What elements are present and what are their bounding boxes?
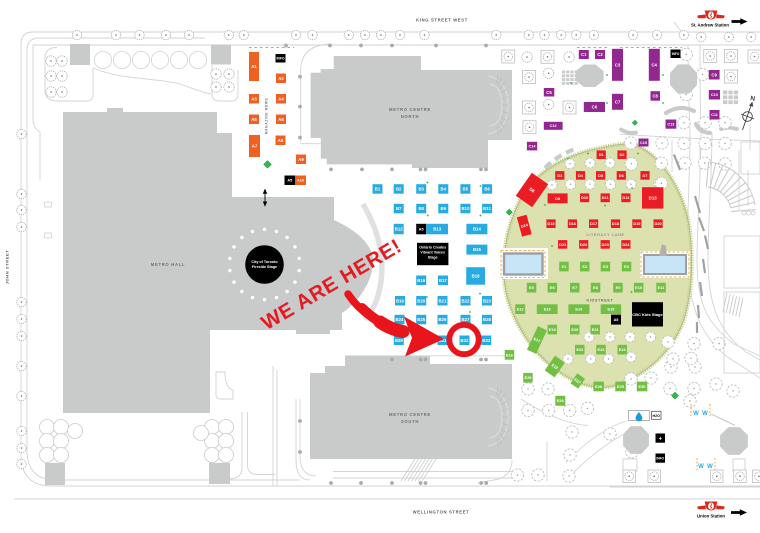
svg-text:B2: B2: [396, 187, 402, 192]
svg-text:CBC Kids Stage: CBC Kids Stage: [632, 312, 663, 317]
svg-text:D19: D19: [633, 221, 641, 226]
svg-text:C5: C5: [546, 90, 552, 95]
svg-text:B15: B15: [473, 247, 481, 252]
svg-text:INFO: INFO: [276, 57, 284, 61]
svg-text:MAGAZINE MEWS: MAGAZINE MEWS: [265, 98, 269, 135]
svg-text:E9: E9: [616, 285, 622, 290]
svg-text:A4: A4: [278, 96, 284, 101]
svg-text:KING STREET WEST: KING STREET WEST: [416, 18, 468, 23]
svg-text:E22: E22: [576, 347, 584, 352]
svg-text:B25: B25: [417, 317, 425, 322]
svg-text:Union Station: Union Station: [697, 513, 725, 518]
svg-text:INFO: INFO: [672, 52, 680, 56]
svg-text:E12: E12: [517, 307, 525, 312]
svg-text:E6: E6: [550, 285, 556, 290]
svg-text:C13: C13: [667, 123, 674, 127]
svg-text:C1: C1: [581, 52, 587, 57]
svg-text:E8: E8: [593, 285, 599, 290]
svg-text:C6: C6: [592, 105, 598, 110]
svg-text:D23: D23: [602, 242, 610, 247]
svg-text:B8: B8: [418, 206, 424, 211]
svg-text:E16: E16: [506, 352, 514, 357]
svg-text:D11: D11: [602, 195, 610, 200]
svg-text:A8: A8: [278, 138, 284, 143]
svg-text:C11: C11: [711, 113, 718, 117]
svg-text:E13: E13: [544, 307, 552, 312]
svg-text:W: W: [698, 464, 704, 470]
svg-text:B12: B12: [395, 227, 403, 232]
svg-text:E26: E26: [557, 398, 565, 403]
svg-text:E3: E3: [603, 264, 609, 269]
svg-text:D1: D1: [599, 152, 605, 157]
svg-text:E29: E29: [617, 384, 625, 389]
svg-text:B7: B7: [396, 206, 402, 211]
svg-text:C4: C4: [651, 62, 657, 67]
svg-text:C14: C14: [529, 145, 537, 149]
svg-text:C9: C9: [711, 72, 717, 77]
svg-text:D22: D22: [580, 242, 588, 247]
svg-text:A5: A5: [614, 318, 619, 322]
svg-text:E24: E24: [619, 347, 627, 352]
svg-text:LITERACY LANE: LITERACY LANE: [586, 233, 624, 237]
svg-text:+: +: [658, 436, 662, 442]
svg-text:E4: E4: [624, 264, 630, 269]
svg-text:B14: B14: [473, 227, 481, 232]
svg-text:C2: C2: [597, 52, 603, 57]
svg-text:E14: E14: [575, 307, 583, 312]
svg-text:A5: A5: [419, 227, 424, 231]
svg-text:B24: B24: [396, 317, 404, 322]
svg-text:C7: C7: [615, 99, 621, 104]
svg-text:C15: C15: [640, 141, 647, 145]
svg-text:E10: E10: [635, 285, 642, 290]
svg-text:Ontario Creates: Ontario Creates: [419, 246, 446, 250]
svg-text:W: W: [693, 411, 699, 417]
svg-text:KIDSTREET: KIDSTREET: [587, 299, 614, 303]
svg-text:W: W: [702, 411, 708, 417]
svg-text:A5: A5: [251, 117, 257, 122]
svg-text:B20: B20: [417, 298, 425, 303]
svg-text:E30: E30: [639, 384, 646, 389]
svg-text:B10: B10: [461, 206, 469, 211]
svg-text:B18: B18: [472, 274, 480, 279]
svg-text:B32: B32: [461, 338, 469, 343]
svg-text:A6: A6: [278, 117, 284, 122]
svg-text:D20: D20: [655, 221, 662, 226]
svg-text:B5: B5: [463, 187, 469, 192]
svg-text:E11: E11: [658, 285, 666, 290]
svg-text:B3: B3: [418, 187, 424, 192]
svg-text:A3: A3: [251, 96, 257, 101]
svg-text:D15: D15: [547, 221, 555, 226]
svg-text:B6: B6: [484, 187, 490, 192]
svg-text:E25: E25: [525, 375, 533, 380]
svg-text:Fireside Stage: Fireside Stage: [252, 265, 277, 269]
svg-text:B13: B13: [433, 227, 441, 232]
svg-text:B22: B22: [462, 298, 470, 303]
svg-text:METRO CENTRE: METRO CENTRE: [389, 107, 431, 112]
svg-text:E5: E5: [529, 285, 535, 290]
svg-text:E23: E23: [598, 347, 606, 352]
svg-text:D4: D4: [578, 173, 584, 178]
svg-text:D3: D3: [557, 173, 563, 178]
svg-text:E15: E15: [608, 307, 616, 312]
svg-text:E1: E1: [562, 264, 568, 269]
svg-text:B33: B33: [482, 338, 490, 343]
svg-text:METRO CENTRE: METRO CENTRE: [389, 412, 431, 417]
svg-text:B17: B17: [439, 278, 447, 283]
svg-text:A5: A5: [287, 179, 292, 183]
svg-text:B28: B28: [483, 317, 491, 322]
svg-text:D10: D10: [581, 195, 588, 200]
svg-text:A7: A7: [252, 144, 258, 149]
svg-text:D16: D16: [569, 221, 577, 226]
svg-text:C8: C8: [652, 94, 658, 99]
svg-text:Vibrant Voices: Vibrant Voices: [420, 251, 445, 255]
svg-text:E21: E21: [592, 327, 600, 332]
svg-text:Stage: Stage: [428, 256, 438, 260]
svg-text:WELLINGTON STREET: WELLINGTON STREET: [413, 510, 470, 515]
svg-text:E7: E7: [572, 285, 577, 290]
svg-text:D21: D21: [559, 242, 567, 247]
svg-text:B29: B29: [395, 338, 403, 343]
svg-text:E2: E2: [582, 264, 588, 269]
svg-text:B4: B4: [441, 187, 447, 192]
svg-text:NORTH: NORTH: [401, 114, 419, 119]
svg-text:City of Toronto: City of Toronto: [251, 260, 278, 264]
svg-text:C10: C10: [711, 93, 718, 97]
svg-text:B16: B16: [417, 278, 425, 283]
svg-text:D17: D17: [590, 221, 597, 226]
svg-text:D9: D9: [555, 196, 561, 201]
svg-text:B1: B1: [375, 187, 381, 192]
svg-text:D24: D24: [622, 242, 630, 247]
svg-text:D2: D2: [620, 152, 626, 157]
svg-text:D13: D13: [649, 196, 658, 201]
svg-text:D12: D12: [622, 195, 630, 200]
svg-text:E19: E19: [549, 327, 557, 332]
svg-text:St. Andrew Station: St. Andrew Station: [691, 22, 729, 27]
svg-text:D6: D6: [619, 173, 625, 178]
svg-text:B27: B27: [462, 317, 470, 322]
svg-text:E20: E20: [571, 327, 578, 332]
svg-text:B11: B11: [483, 206, 491, 211]
svg-text:B21: B21: [439, 298, 447, 303]
svg-text:D18: D18: [612, 221, 620, 226]
svg-text:D5: D5: [598, 173, 604, 178]
svg-text:JOHN STREET: JOHN STREET: [5, 250, 10, 285]
svg-text:A10: A10: [297, 179, 304, 183]
svg-text:B9: B9: [441, 206, 447, 211]
svg-text:B23: B23: [483, 298, 491, 303]
svg-text:B26: B26: [439, 317, 447, 322]
svg-text:A2: A2: [278, 76, 284, 81]
svg-text:A1: A1: [251, 64, 257, 69]
svg-text:H2O: H2O: [653, 414, 661, 418]
svg-text:D7: D7: [643, 173, 648, 178]
svg-text:SOUTH: SOUTH: [401, 419, 419, 424]
svg-text:C3: C3: [615, 62, 621, 67]
svg-text:METRO HALL: METRO HALL: [151, 262, 185, 267]
svg-text:E28: E28: [595, 384, 603, 389]
svg-text:INFO: INFO: [656, 456, 664, 460]
svg-text:C12: C12: [550, 124, 557, 128]
svg-text:B19: B19: [396, 298, 404, 303]
svg-text:A9: A9: [298, 157, 304, 162]
svg-text:W: W: [707, 464, 713, 470]
